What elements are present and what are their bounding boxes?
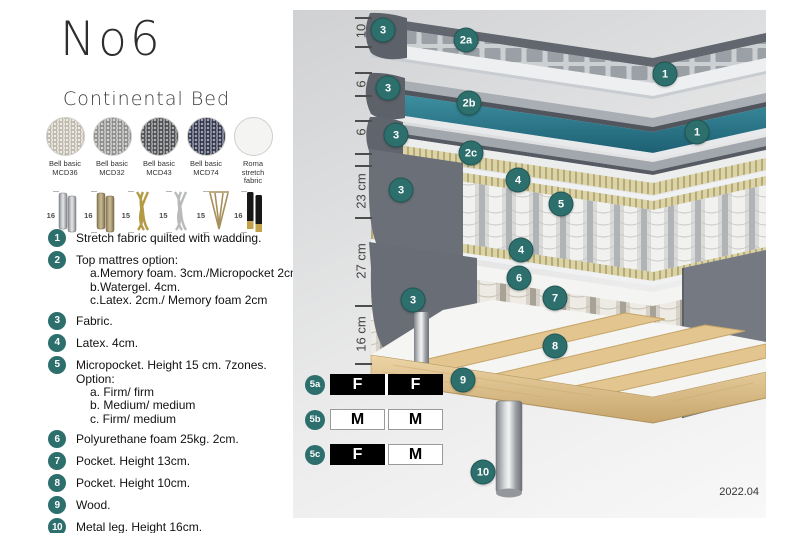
callout-fabric-3: 3 [384,123,409,148]
poster: No6 Continental Bed Bell basic MCD36 Bel… [0,0,800,533]
callout-2b: 2b [457,91,482,116]
swatch-code: MCD36 [49,169,81,178]
item-sub-option: c.Latex. 2cm./ Memory foam 2cm [90,294,300,308]
leg-option-cylinder-silver: 16 [45,189,83,233]
ruler-tick [355,165,372,167]
swatch-mcd32: Bell basic MCD32 [91,117,133,186]
callout-5: 5 [549,192,574,217]
item-number-badge: 9 [48,496,66,514]
ruler-label: 16 cm [354,316,369,351]
item-text: Wood. [76,498,110,512]
list-item-2: 2 Top mattres option: a.Memory foam. 3cm… [48,251,302,308]
fabric-swatches: Bell basic MCD36 Bell basic MCD32 Bell b… [44,117,274,186]
list-item-8: 8 Pocket. Height 10cm. [48,474,302,492]
firmness-row-badge: 5a [305,375,325,395]
callout-10: 10 [471,460,496,485]
firmness-row-5c: 5c F M [305,444,443,465]
item-text: Polyurethane foam 25kg. 2cm. [76,432,239,446]
ruler-tick [355,46,372,48]
firmness-cell: M [330,409,385,430]
spec-list: 1 Stretch fabric quilted with wadding. 2… [48,229,302,533]
item-number-badge: 4 [48,334,66,352]
swatch-code: MCD74 [190,169,222,178]
item-sub-option: a. Firm/ firm [90,386,302,400]
fabric-swatch-icon [46,117,85,156]
item-sub-option: a.Memory foam. 3cm./Micropocket 2cm [90,267,300,281]
black-brass-tip-leg-icon [245,189,265,233]
swatch-mcd43: Bell basic MCD43 [138,117,180,186]
callout-7: 7 [543,286,568,311]
swatch-code: MCD43 [143,169,175,178]
twisted-silver-leg-icon [170,189,192,233]
leg-option-black-brass-tip: 16 [233,189,271,233]
callout-8: 8 [543,334,568,359]
item-text: Fabric. [76,314,113,328]
callout-2a: 2a [454,28,479,53]
item-number-badge: 6 [48,430,66,448]
firmness-row-5b: 5b M M [305,409,443,430]
leg-height: 16 [45,211,55,220]
leg-height: 16 [233,211,243,220]
leg-height: 16 [83,211,93,220]
item-sub-option: b. Medium/ medium [90,399,302,413]
callout-4: 4 [506,168,531,193]
fabric-swatch-icon [187,117,226,156]
item-sub-option: b.Watergel. 4cm. [90,281,300,295]
ruler-tick [355,120,372,122]
list-item-6: 6 Polyurethane foam 25kg. 2cm. [48,430,302,448]
firmness-row-badge: 5b [305,410,325,430]
ruler-tick [355,305,372,307]
swatch-mcd74: Bell basic MCD74 [185,117,227,186]
swatch-roma: Roma stretch fabric [232,117,274,186]
item-text: Metal leg. Height 16cm. [76,520,202,533]
firmness-cell: F [330,444,385,465]
fabric-swatch-icon [140,117,179,156]
leg-height: 15 [195,211,205,220]
fabric-swatch-icon [234,117,273,156]
list-item-5: 5 Micropocket. Height 15 cm. 7zones. Opt… [48,356,302,427]
item-text: Latex. 4cm. [76,336,138,350]
firmness-cell: F [388,374,443,395]
firmness-cell: F [330,374,385,395]
callout-fabric-3: 3 [389,178,414,203]
list-item-9: 9 Wood. [48,496,302,514]
hairpin-leg-icon [207,189,231,233]
firmness-row-badge: 5c [305,445,325,465]
swatch-code: MCD32 [96,169,128,178]
cylinder-bronze-leg-icon [95,189,117,233]
item-text: Top mattres option: [76,253,300,267]
item-number-badge: 3 [48,312,66,330]
list-item-3: 3 Fabric. [48,312,302,330]
fabric-swatch-icon [93,117,132,156]
item-text: Pocket. Height 10cm. [76,476,190,490]
item-text: Stretch fabric quilted with wadding. [76,231,261,245]
leg-height: 15 [158,211,168,220]
item-sub-option: c. Firm/ medium [90,413,302,427]
ruler-tick [355,95,372,97]
product-subtitle: Continental Bed [63,88,230,110]
callout-fabric-3: 3 [401,288,426,313]
list-item-10: 10 Metal leg. Height 16cm. [48,518,302,533]
ruler-tick [355,153,372,155]
callout-9: 9 [451,368,476,393]
item-text: Micropocket. Height 15 cm. 7zones. Optio… [76,358,302,386]
leg-option-cylinder-bronze: 16 [83,189,121,233]
item-text: Pocket. Height 13cm. [76,454,190,468]
ruler-label: 6 [354,128,369,135]
item-number-badge: 10 [48,518,66,533]
firmness-table: 5a F F 5b M M 5c F M [305,374,443,479]
item-number-badge: 2 [48,251,66,269]
ruler-label: 23 cm [354,173,369,208]
item-number-badge: 1 [48,229,66,247]
bed-exploded-diagram: 10 6 6 23 cm 27 cm 16 cm 3 2a 1 3 2b 1 3… [293,10,766,518]
ruler-tick [355,363,372,365]
ruler-label: 6 [354,80,369,87]
item-number-badge: 8 [48,474,66,492]
version-stamp: 2022.04 [689,486,759,498]
item-number-badge: 7 [48,452,66,470]
ruler-label: 10 [354,24,369,38]
swatch-mcd36: Bell basic MCD36 [44,117,86,186]
leg-height: 15 [120,211,130,220]
callout-2c: 2c [459,141,484,166]
ruler-tick [355,17,372,19]
twisted-gold-leg-icon [132,189,154,233]
swatch-code: stretch fabric [232,169,274,186]
item-number-badge: 5 [48,356,66,374]
cylinder-silver-leg-icon [57,189,79,233]
list-item-1: 1 Stretch fabric quilted with wadding. [48,229,302,247]
ruler-tick [355,217,372,219]
leg-option-hairpin: 15 [195,189,233,233]
firmness-cell: M [388,444,443,465]
product-title: No6 [60,12,163,67]
callout-4: 4 [509,238,534,263]
ruler-tick [355,72,372,74]
ruler-label: 27 cm [354,243,369,278]
list-item-7: 7 Pocket. Height 13cm. [48,452,302,470]
leg-options: 16 16 15 15 [45,189,270,233]
callout-fabric-3: 3 [376,76,401,101]
callout-1: 1 [685,120,710,145]
list-item-4: 4 Latex. 4cm. [48,334,302,352]
callout-6: 6 [507,266,532,291]
callout-1: 1 [653,62,678,87]
leg-option-twisted-silver: 15 [158,189,196,233]
firmness-cell: M [388,409,443,430]
firmness-row-5a: 5a F F [305,374,443,395]
leg-option-twisted-gold: 15 [120,189,158,233]
metal-leg [496,401,522,498]
callout-fabric-3: 3 [371,18,396,43]
